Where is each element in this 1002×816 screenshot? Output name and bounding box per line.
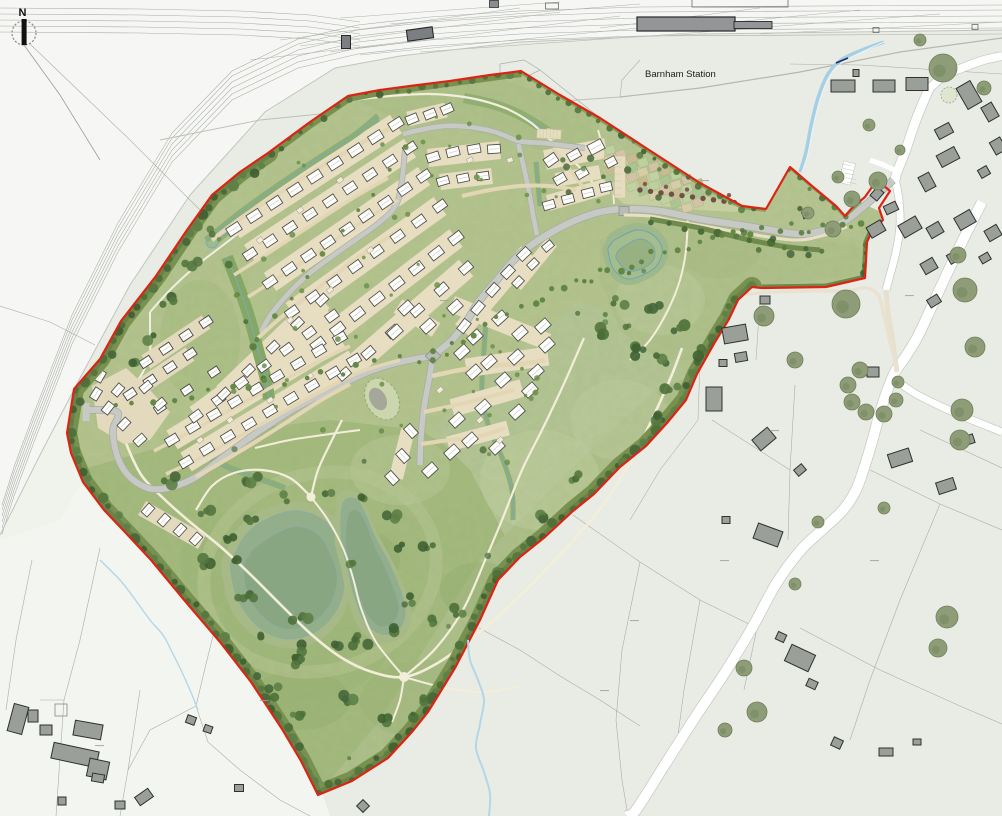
svg-text:N: N [19, 7, 27, 19]
svg-text:Barnham Station: Barnham Station [645, 69, 716, 80]
